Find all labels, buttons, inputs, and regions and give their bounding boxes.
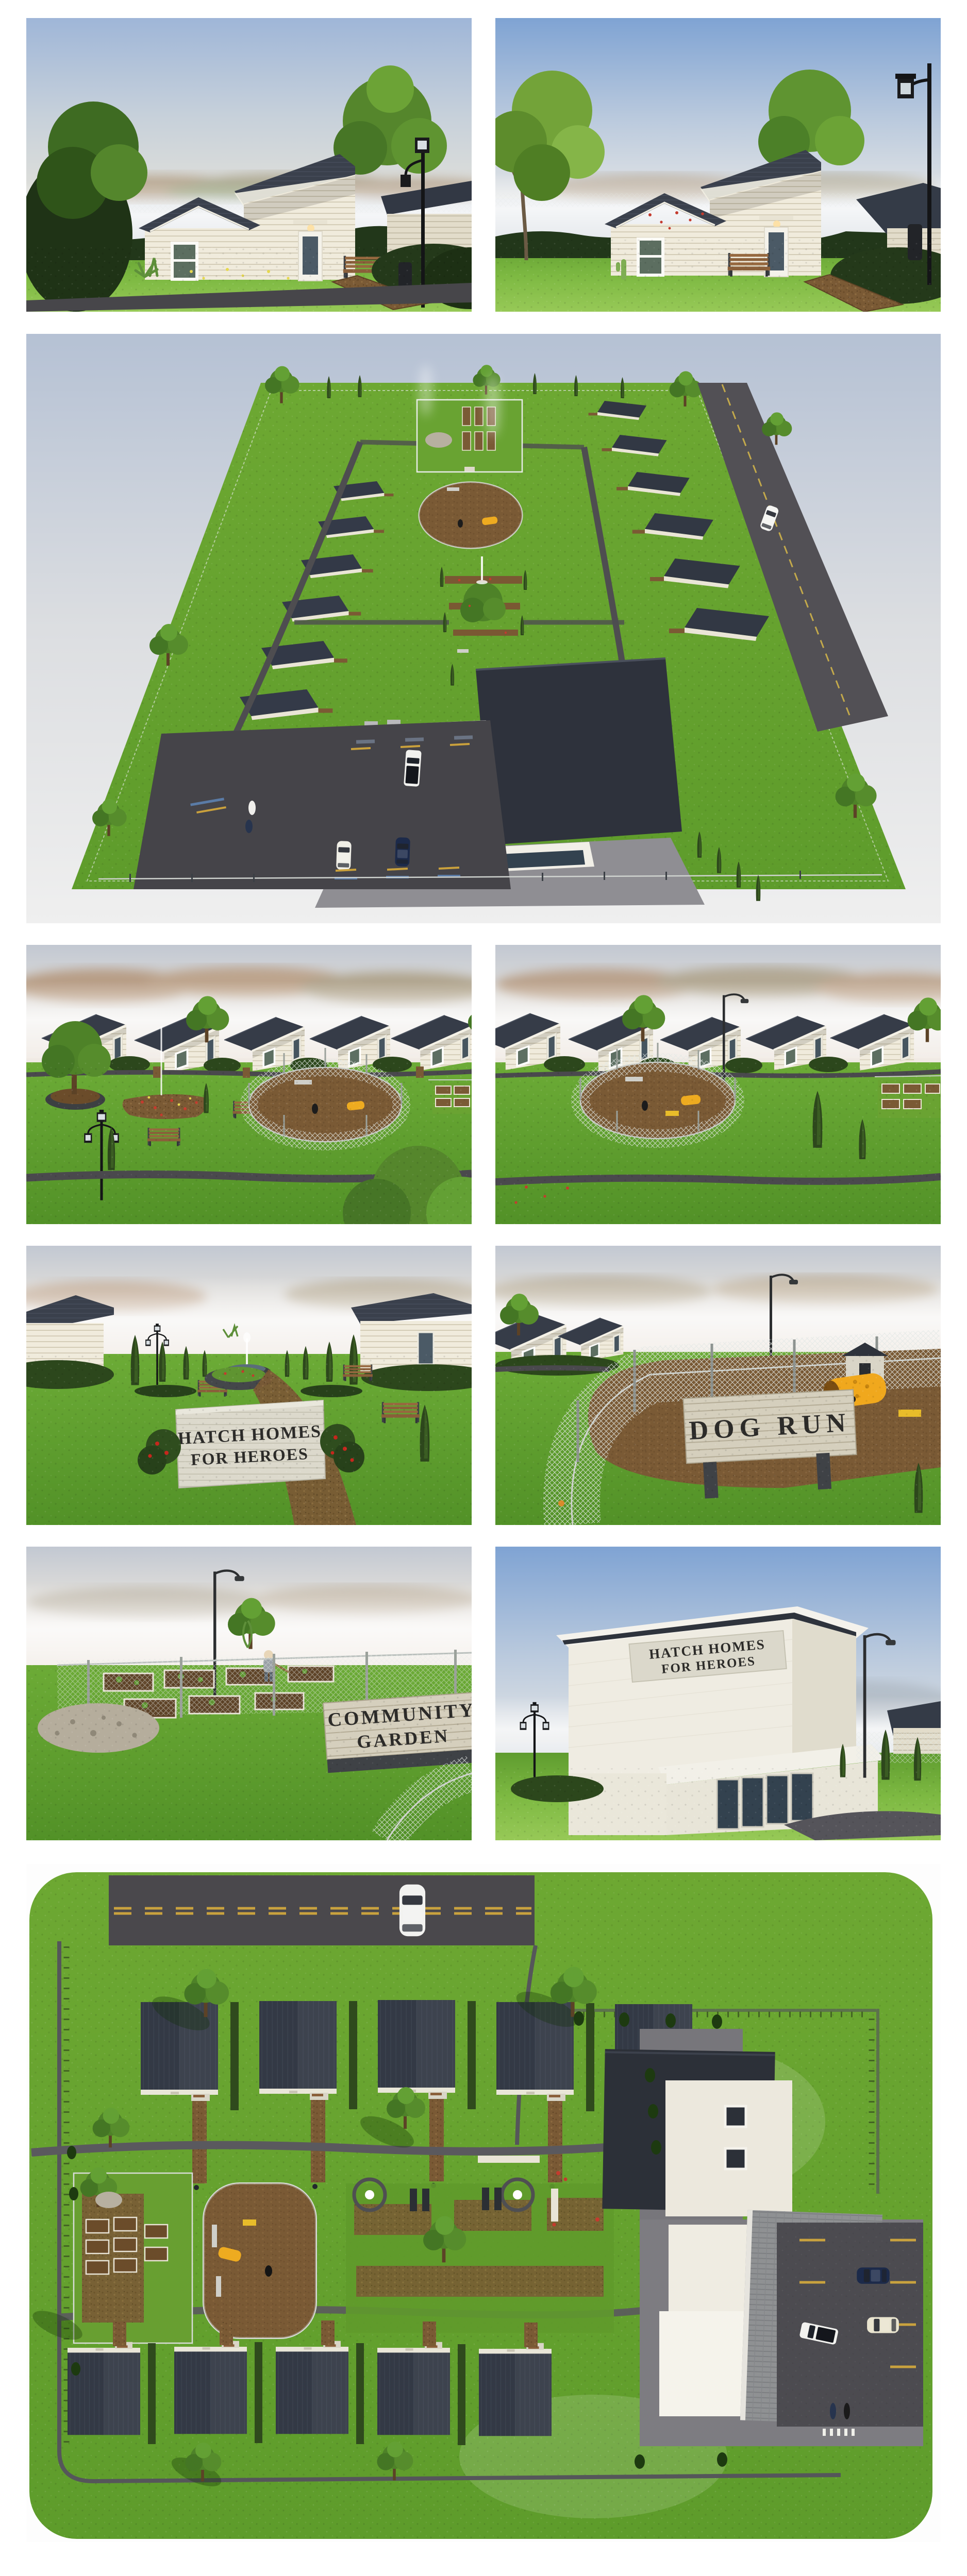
render-memorial-garden: HATCH HOMES FOR HEROES: [26, 1246, 472, 1525]
render-dog-run-closeup: DOG RUN: [495, 1246, 941, 1525]
community-garden-plan: [417, 400, 522, 472]
parking-lot-aerial: [134, 720, 511, 889]
render-community-garden: COMMUNITY GARDEN: [26, 1547, 472, 1840]
grass-texture: [495, 1352, 941, 1525]
grass-texture: [495, 1062, 941, 1224]
render-site-plan: [26, 1864, 941, 2542]
parking-plan: [777, 2223, 923, 2436]
render-tiny-home-front-a: [26, 18, 472, 312]
render-site-aerial: [26, 334, 941, 923]
dog-run-plan: [204, 2183, 316, 2338]
community-garden-plan: [74, 2167, 192, 2343]
street: [109, 1875, 535, 1945]
grass-texture: [26, 1354, 472, 1525]
grass-texture: [495, 1768, 941, 1840]
render-park-dog-run: [495, 945, 941, 1224]
render-park-flower-garden: [26, 945, 472, 1224]
dog-run-plan: [419, 482, 522, 548]
grass-texture: [26, 1665, 472, 1840]
portfolio-page: HATCH HOMES FOR HEROES: [0, 0, 967, 2576]
render-tiny-home-front-b: [495, 18, 941, 312]
render-community-building: HATCH HOMES FOR HEROES: [495, 1547, 941, 1840]
grass-texture: [26, 1062, 472, 1224]
grass-texture: [495, 240, 941, 312]
